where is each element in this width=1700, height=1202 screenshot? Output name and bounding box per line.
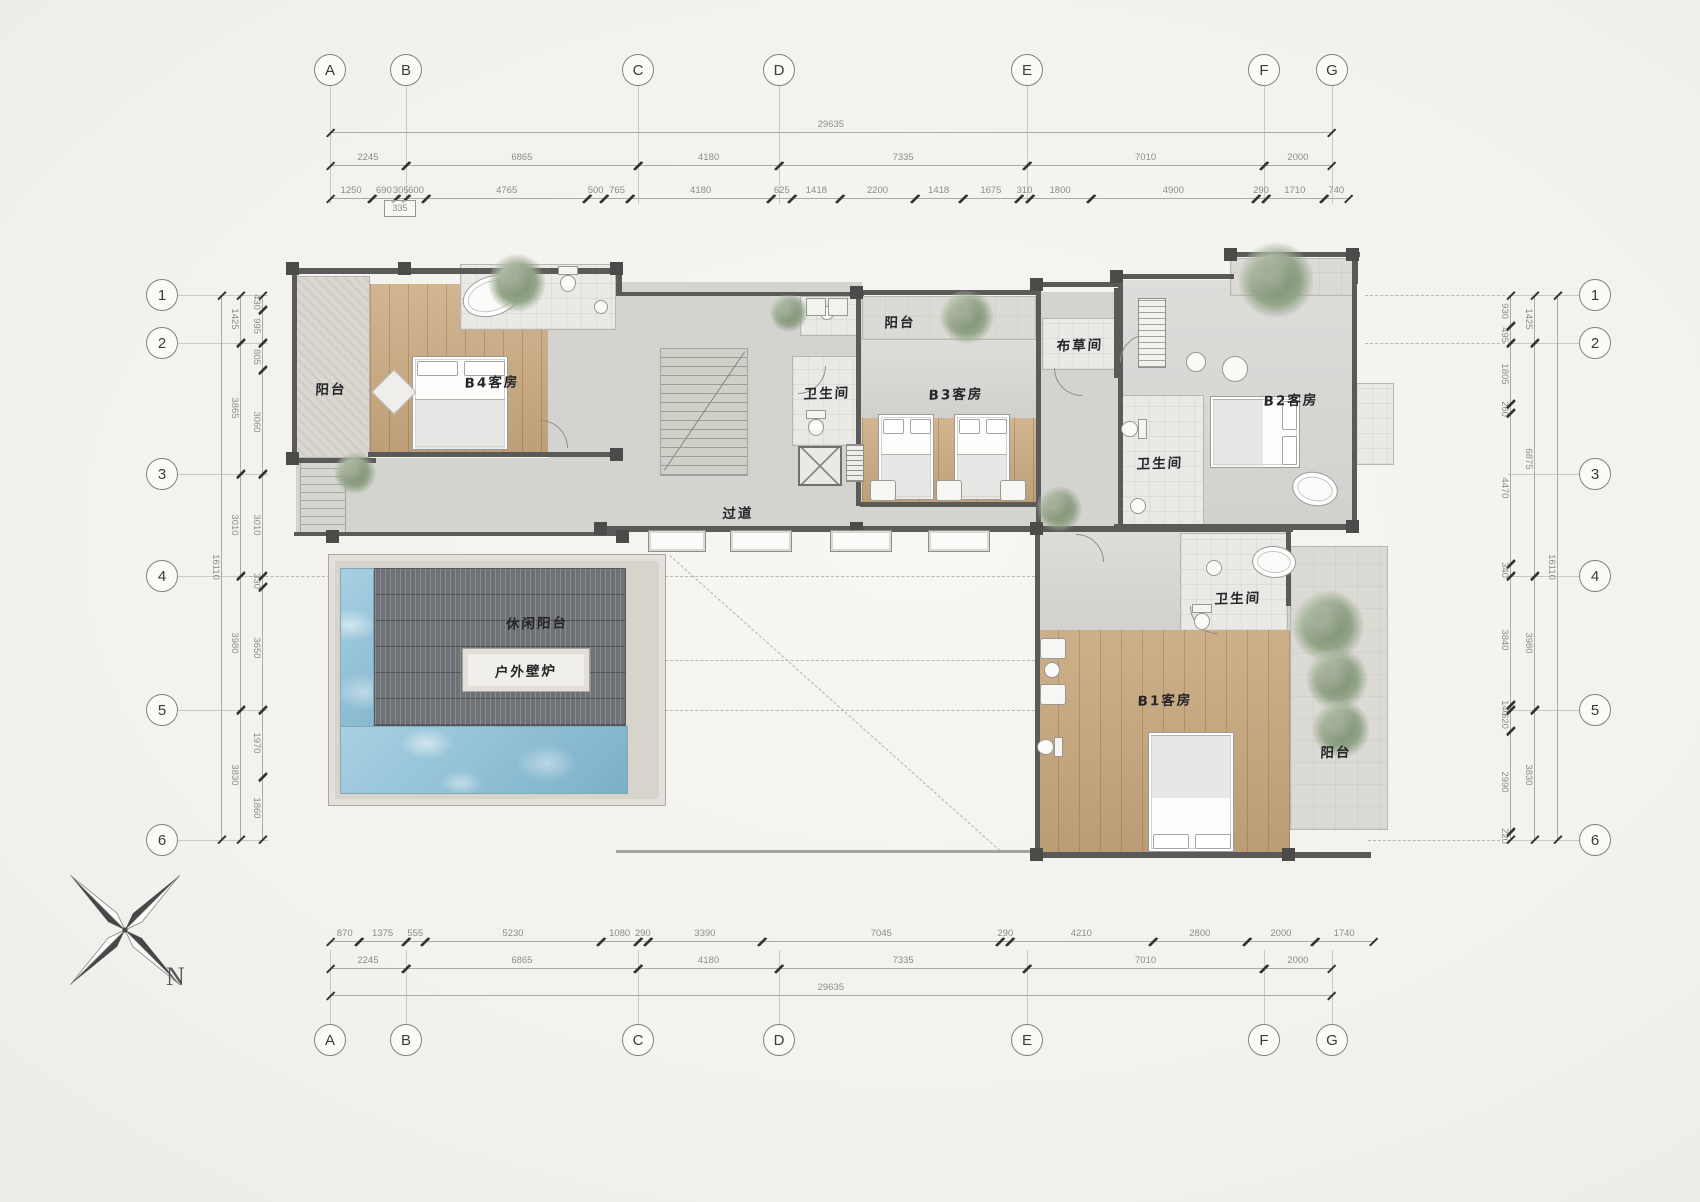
- room-label-linen-room: 布草间: [1056, 333, 1103, 354]
- grid-line-col-D: [779, 950, 780, 1024]
- leisure-deck: [374, 568, 626, 726]
- dim-right-total: 16110: [1557, 295, 1558, 840]
- dim-left-mid: 1425: [240, 295, 241, 343]
- grid-bubble-col-B-bottom: B: [390, 1024, 422, 1056]
- north-label: N: [166, 962, 185, 992]
- grid-bubble-col-E-top: E: [1011, 54, 1043, 86]
- construction-line: [1365, 343, 1505, 344]
- grid-bubble-row-6-left: 6: [146, 824, 178, 856]
- sink-basin: [1130, 498, 1146, 514]
- wall-segment: [1035, 526, 1293, 532]
- grid-line-col-A: [330, 950, 331, 1024]
- dim-bottom-fine: 555: [406, 941, 425, 942]
- dim-tick: [758, 937, 767, 946]
- dim-bottom-fine: 870: [330, 941, 359, 942]
- wall-segment: [1118, 274, 1123, 532]
- lounge-chair: [1040, 684, 1066, 705]
- grid-line-col-B: [406, 950, 407, 1024]
- dim-right-inner: 3840: [1510, 576, 1511, 706]
- dim-top-fine: 1418: [915, 198, 963, 199]
- dim-right-inner: 620: [1510, 710, 1511, 731]
- dim-top-fine: 1710: [1266, 198, 1324, 199]
- lounge-chair: [936, 480, 962, 501]
- room-label-corridor: 过道: [722, 502, 754, 523]
- room-label-bathroom-b1: 卫生间: [1214, 586, 1261, 607]
- structural-column: [1224, 248, 1237, 261]
- dim-left-mid: 3010: [240, 474, 241, 576]
- appliance: [806, 298, 826, 316]
- bay-window: [830, 530, 892, 552]
- dim-right-inner: 220: [1510, 832, 1511, 839]
- pillow: [910, 419, 931, 434]
- grid-line-row-5: [1508, 710, 1579, 711]
- dim-left-inner: 430: [262, 295, 263, 310]
- blanket: [415, 399, 505, 449]
- dim-tick: [1243, 937, 1252, 946]
- balcony-b4-floor: [294, 276, 370, 458]
- potted-plant: [1238, 242, 1314, 318]
- dim-top-fine: 1418: [792, 198, 840, 199]
- dim-tick: [1369, 937, 1378, 946]
- room-label-bathroom-b2: 卫生间: [1136, 451, 1183, 472]
- grid-bubble-col-D-top: D: [763, 54, 795, 86]
- grid-bubble-col-C-top: C: [622, 54, 654, 86]
- pillow: [959, 419, 980, 434]
- dim-tick: [767, 194, 776, 203]
- b1-bed: [1148, 732, 1234, 852]
- room-label-outdoor-fireplace: 户外壁炉: [495, 659, 558, 681]
- dim-left-inner: 805: [262, 343, 263, 370]
- dim-top-fine: 600: [406, 198, 426, 199]
- dim-top-major: 7010: [1027, 165, 1264, 166]
- grid-bubble-col-F-bottom: F: [1248, 1024, 1280, 1056]
- grid-bubble-col-A-bottom: A: [314, 1024, 346, 1056]
- bay-window: [928, 530, 990, 552]
- dim-bottom-major: 2000: [1264, 968, 1332, 969]
- dim-tick: [258, 366, 267, 375]
- dim-tick: [1344, 194, 1353, 203]
- grid-bubble-col-G-top: G: [1316, 54, 1348, 86]
- dim-right-inner: 930: [1510, 295, 1511, 326]
- grid-line-row-2: [1508, 343, 1579, 344]
- dim-right-inner: 2990: [1510, 731, 1511, 832]
- dim-bottom-total: 29635: [330, 995, 1332, 996]
- dim-left-mid: 3865: [240, 343, 241, 474]
- dim-top-total: 29635: [330, 132, 1332, 133]
- grid-bubble-row-3-left: 3: [146, 458, 178, 490]
- dim-tick: [368, 194, 377, 203]
- dimension-note: 335: [384, 200, 416, 217]
- room-label-b3-guest-room: B3客房: [928, 382, 984, 403]
- pool-main: [340, 726, 628, 794]
- grid-bubble-row-1-left: 1: [146, 279, 178, 311]
- dim-left-inner: 995: [262, 310, 263, 344]
- grid-line-col-F: [1264, 950, 1265, 1024]
- potted-plant: [488, 254, 546, 312]
- floor-plan-sheet: 阳台B4客房卫生间阳台B3客房布草间B2客房卫生间过道休闲阳台户外壁炉卫生间B1…: [0, 0, 1700, 1202]
- grid-bubble-row-5-right: 5: [1579, 694, 1611, 726]
- blanket: [1213, 399, 1263, 466]
- bay-window: [648, 530, 706, 552]
- room-label-b4-guest-room: B4客房: [464, 370, 520, 391]
- grid-bubble-col-D-bottom: D: [763, 1024, 795, 1056]
- lounge-chair: [1000, 480, 1026, 501]
- construction-line: [1368, 840, 1500, 841]
- structural-column: [1346, 248, 1359, 261]
- dim-left-total: 16110: [221, 295, 222, 840]
- dim-left-inner: 3010: [262, 474, 263, 576]
- sink-basin: [594, 300, 608, 314]
- room-label-bathroom-core: 卫生间: [803, 381, 850, 402]
- grid-bubble-row-1-right: 1: [1579, 279, 1611, 311]
- dim-tick: [326, 937, 335, 946]
- dim-bottom-fine: 2000: [1247, 941, 1315, 942]
- wall-segment: [618, 292, 864, 296]
- toilet-top-bath: [558, 266, 578, 292]
- potted-plant: [940, 290, 994, 344]
- dim-tick: [788, 194, 797, 203]
- void-edge-line: [616, 850, 1040, 853]
- b2-bay-window-floor: [1356, 383, 1394, 465]
- structural-column: [1110, 270, 1123, 283]
- construction-line-diagonal: [669, 555, 1000, 851]
- grid-line-row-2: [178, 343, 268, 344]
- wall-segment: [1352, 280, 1357, 532]
- wardrobe: [1138, 298, 1166, 368]
- dim-top-major: 2245: [330, 165, 406, 166]
- dim-left-mid: 3980: [240, 576, 241, 711]
- structural-column: [1282, 848, 1295, 861]
- potted-plant: [1036, 486, 1082, 532]
- grid-line-row-3: [1508, 474, 1579, 475]
- dim-right-mid: 1425: [1534, 295, 1535, 343]
- pillow: [1195, 834, 1231, 849]
- grid-bubble-col-B-top: B: [390, 54, 422, 86]
- dim-left-inner: 3650: [262, 587, 263, 710]
- dim-top-fine: 4180: [630, 198, 771, 199]
- wall-segment: [294, 532, 622, 536]
- bay-window: [730, 530, 792, 552]
- toilet-b1-bath: [1192, 604, 1212, 630]
- pillow: [1282, 436, 1297, 465]
- dim-left-inner: 1970: [262, 710, 263, 777]
- dim-tick: [1506, 323, 1515, 332]
- toilet-b1-room: [1037, 737, 1063, 757]
- construction-line: [640, 576, 1035, 577]
- pillow: [1153, 834, 1189, 849]
- room-label-balcony-top-middle: 阳台: [884, 311, 916, 332]
- dim-right-mid: 6875: [1534, 343, 1535, 575]
- grid-bubble-col-E-bottom: E: [1011, 1024, 1043, 1056]
- room-label-balcony-bottom-right: 阳台: [1320, 741, 1352, 762]
- dim-top-fine: 765: [604, 198, 630, 199]
- dim-tick: [355, 937, 364, 946]
- dim-top-fine: 690: [372, 198, 395, 199]
- dim-bottom-fine: 5230: [425, 941, 602, 942]
- grid-bubble-row-6-right: 6: [1579, 824, 1611, 856]
- sink-basin: [1186, 352, 1206, 372]
- dim-bottom-fine: 2800: [1153, 941, 1248, 942]
- dim-bottom-major: 2245: [330, 968, 406, 969]
- blanket: [1151, 735, 1231, 798]
- wall-segment: [1036, 288, 1041, 528]
- dim-bottom-fine: 4210: [1010, 941, 1152, 942]
- dim-right-inner: 1805: [1510, 343, 1511, 404]
- grid-line-row-6: [1508, 840, 1579, 841]
- grid-line-row-6: [178, 840, 268, 841]
- grid-line-col-E: [1027, 950, 1028, 1024]
- dim-bottom-fine: 1740: [1315, 941, 1374, 942]
- room-label-b1-guest-room: B1客房: [1137, 688, 1193, 709]
- dim-left-inner: 1860: [262, 777, 263, 840]
- grid-bubble-row-2-right: 2: [1579, 327, 1611, 359]
- grid-line-row-5: [178, 710, 268, 711]
- room-label-leisure-balcony: 休闲阳台: [506, 611, 569, 633]
- dim-bottom-major: 7335: [779, 968, 1027, 969]
- lounge-chair: [870, 480, 896, 501]
- grid-line-col-A: [330, 86, 331, 204]
- dim-right-mid: 3980: [1534, 576, 1535, 711]
- elevator-shaft: [798, 446, 842, 486]
- structural-column: [850, 286, 863, 299]
- dim-top-major: 6865: [406, 165, 638, 166]
- dim-top-major: 7335: [779, 165, 1027, 166]
- dim-tick: [583, 194, 592, 203]
- grid-bubble-row-3-right: 3: [1579, 458, 1611, 490]
- dim-left-inner: 3060: [262, 370, 263, 473]
- dim-right-mid: 3830: [1534, 710, 1535, 839]
- dim-top-fine: 1800: [1030, 198, 1091, 199]
- dim-top-fine: 2200: [840, 198, 914, 199]
- potted-plant: [770, 294, 808, 332]
- lounge-chair: [1040, 638, 1066, 659]
- structural-column: [286, 452, 299, 465]
- dim-tick: [836, 194, 845, 203]
- grid-bubble-row-4-right: 4: [1579, 560, 1611, 592]
- dim-bottom-major: 6865: [406, 968, 638, 969]
- pillow: [986, 419, 1007, 434]
- toilet-b2-bath: [1121, 419, 1147, 439]
- pillow: [883, 419, 904, 434]
- appliance: [828, 298, 848, 316]
- grid-bubble-col-C-bottom: C: [622, 1024, 654, 1056]
- dim-bottom-fine: 1375: [359, 941, 405, 942]
- wall-segment: [1033, 852, 1371, 858]
- dim-bottom-fine: 1080: [601, 941, 638, 942]
- wall-segment: [860, 502, 1040, 507]
- dim-tick: [258, 835, 267, 844]
- structural-column: [398, 262, 411, 275]
- dim-bottom-major: 7010: [1027, 968, 1264, 969]
- construction-line: [615, 660, 1035, 661]
- grid-bubble-row-5-left: 5: [146, 694, 178, 726]
- structural-column: [610, 262, 623, 275]
- sink-basin: [1206, 560, 1222, 576]
- grid-bubble-col-A-top: A: [314, 54, 346, 86]
- grid-bubble-col-F-top: F: [1248, 54, 1280, 86]
- structural-column: [326, 530, 339, 543]
- toilet-core-wc: [806, 410, 826, 436]
- dim-bottom-fine: 7045: [762, 941, 1000, 942]
- dim-top-fine: 1675: [963, 198, 1020, 199]
- dim-tick: [597, 937, 606, 946]
- construction-line: [640, 710, 1035, 711]
- structural-column: [610, 448, 623, 461]
- grid-bubble-col-G-bottom: G: [1316, 1024, 1348, 1056]
- dim-top-fine: 740: [1324, 198, 1349, 199]
- grid-line-row-1: [1508, 295, 1579, 296]
- dim-bottom-fine: 3390: [648, 941, 763, 942]
- dim-right-inner: 4470: [1510, 413, 1511, 564]
- dim-top-fine: 1250: [330, 198, 372, 199]
- grid-line-row-3: [178, 474, 268, 475]
- potted-plant: [334, 452, 376, 494]
- construction-line: [1365, 295, 1505, 296]
- dim-top-fine: 4900: [1091, 198, 1257, 199]
- room-label-balcony-top-left: 阳台: [315, 378, 347, 399]
- grid-line-col-C: [638, 950, 639, 1024]
- grid-bubble-row-4-left: 4: [146, 560, 178, 592]
- grid-line-row-4: [1508, 576, 1579, 577]
- structural-column: [1030, 278, 1043, 291]
- louver-grille: [846, 444, 864, 482]
- grid-line-col-C: [638, 86, 639, 204]
- structural-column: [616, 530, 629, 543]
- structural-column: [594, 522, 607, 535]
- sink-basin: [1222, 356, 1248, 382]
- wall-segment: [292, 268, 297, 462]
- dim-top-major: 2000: [1264, 165, 1332, 166]
- structural-column: [1346, 520, 1359, 533]
- wall-segment: [1118, 274, 1234, 279]
- structural-column: [286, 262, 299, 275]
- room-label-b2-guest-room: B2客房: [1263, 388, 1319, 409]
- b3-room-floor: [862, 340, 1036, 418]
- dim-top-major: 4180: [638, 165, 779, 166]
- dim-left-mid: 3830: [240, 710, 241, 839]
- structural-column: [1030, 848, 1043, 861]
- grid-line-col-G: [1332, 950, 1333, 1024]
- wall-segment: [368, 452, 620, 457]
- pillow: [417, 361, 458, 376]
- dim-top-fine: 625: [771, 198, 792, 199]
- dim-top-fine: 4765: [426, 198, 587, 199]
- dim-bottom-major: 4180: [638, 968, 779, 969]
- sink-basin: [1044, 662, 1060, 678]
- grid-bubble-row-2-left: 2: [146, 327, 178, 359]
